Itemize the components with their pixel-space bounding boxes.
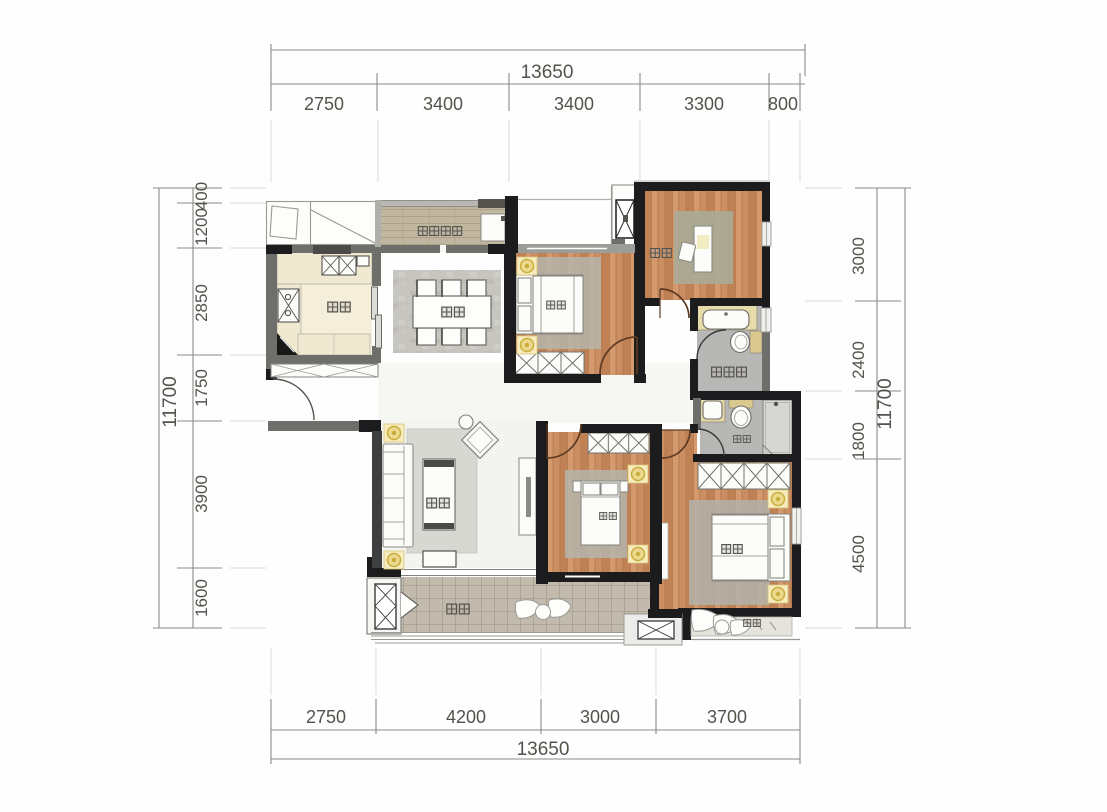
svg-text:2750: 2750 (304, 94, 344, 114)
svg-text:3400: 3400 (554, 94, 594, 114)
svg-text:4500: 4500 (849, 535, 868, 573)
svg-text:3400: 3400 (423, 94, 463, 114)
svg-text:1750: 1750 (192, 369, 211, 407)
svg-text:1600: 1600 (192, 579, 211, 617)
svg-text:3300: 3300 (684, 94, 724, 114)
svg-text:13650: 13650 (517, 739, 570, 760)
svg-text:1800: 1800 (849, 422, 868, 460)
svg-text:11700: 11700 (160, 376, 181, 427)
svg-text:4200: 4200 (446, 707, 486, 727)
svg-text:3700: 3700 (707, 707, 747, 727)
svg-text:3000: 3000 (580, 707, 620, 727)
svg-text:2750: 2750 (306, 707, 346, 727)
svg-text:2850: 2850 (192, 284, 211, 322)
svg-text:3000: 3000 (849, 237, 868, 275)
svg-text:800: 800 (768, 94, 798, 114)
svg-text:11700: 11700 (875, 378, 896, 429)
svg-text:13650: 13650 (521, 62, 574, 83)
svg-text:2400: 2400 (849, 341, 868, 379)
svg-text:400: 400 (192, 182, 211, 210)
svg-text:3900: 3900 (192, 475, 211, 513)
svg-text:1200: 1200 (192, 208, 211, 246)
